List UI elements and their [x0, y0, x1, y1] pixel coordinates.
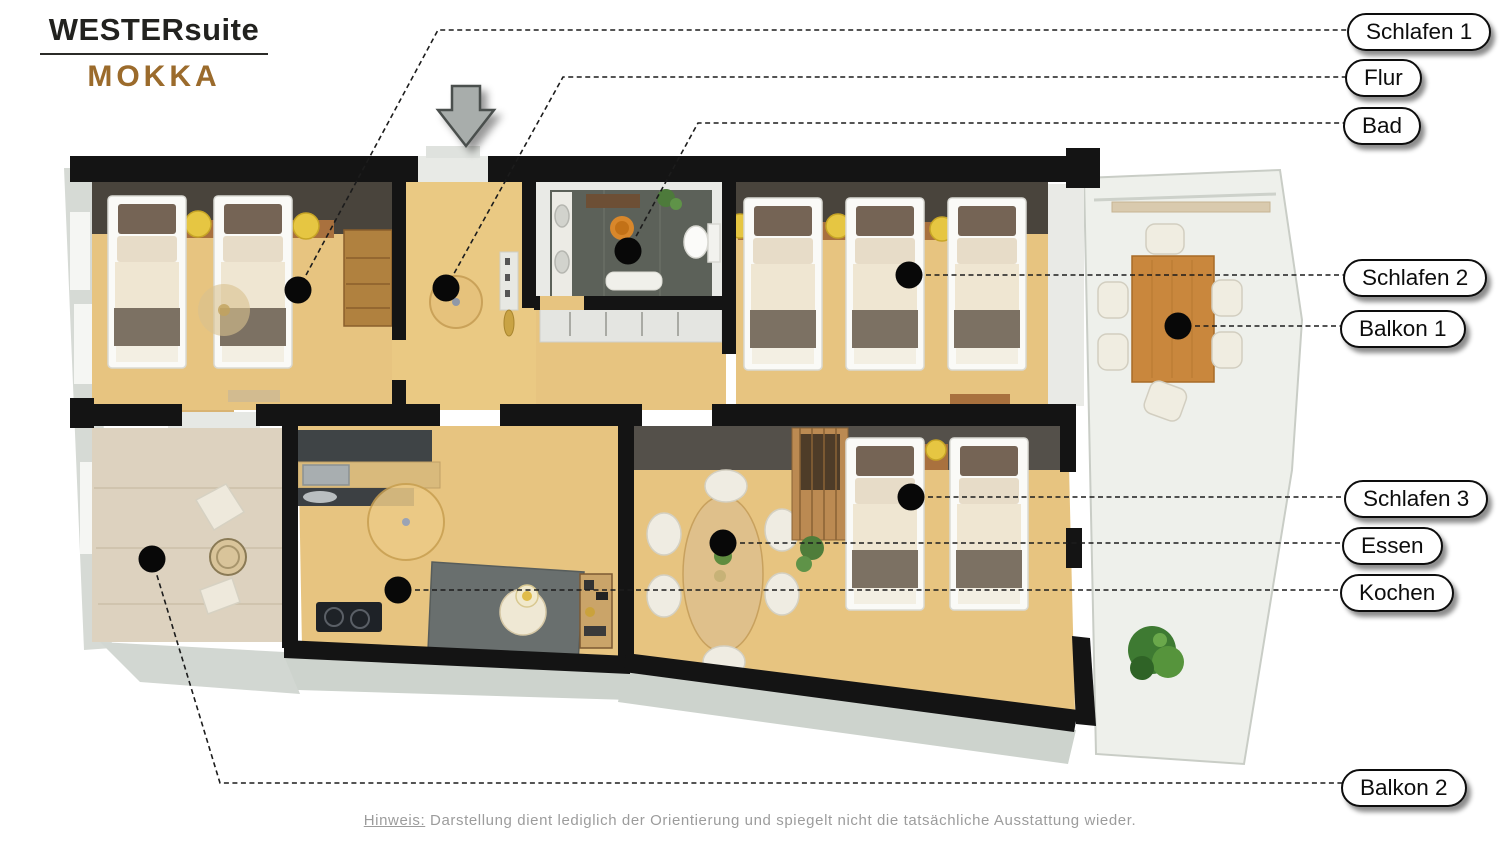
entrance-arrow	[438, 86, 494, 146]
dining-chair	[647, 513, 681, 555]
room-label-kochen: Kochen	[1340, 574, 1454, 612]
disclaimer-text: Darstellung dient lediglich der Orientie…	[430, 812, 1136, 829]
single-bed	[108, 196, 186, 368]
closet	[540, 306, 722, 342]
dot-schlafen-1	[285, 277, 312, 304]
lamp	[185, 211, 211, 237]
room-label-essen: Essen	[1342, 527, 1443, 565]
dot-schlafen-3	[898, 484, 925, 511]
floorplan-graphic	[0, 0, 1500, 844]
room-flur	[392, 180, 536, 410]
room-schlafen-1	[92, 180, 392, 410]
mirror	[504, 310, 514, 336]
room-schlafen-2	[728, 180, 1084, 410]
single-bed	[948, 198, 1026, 370]
lamp	[293, 213, 319, 239]
wicker-table	[210, 539, 246, 575]
room-kueche	[298, 426, 620, 662]
outdoor-chair	[1098, 282, 1128, 318]
room-label-schlafen-1: Schlafen 1	[1347, 13, 1491, 51]
brand-name: WESTERsuite	[40, 12, 268, 48]
balkon-1-area	[1084, 170, 1302, 764]
toilet	[684, 226, 708, 258]
dining-chair	[705, 470, 747, 502]
wardrobe	[344, 230, 392, 326]
disclaimer-prefix: Hinweis:	[364, 812, 425, 829]
room-label-balkon-1: Balkon 1	[1340, 310, 1466, 348]
dot-essen	[710, 530, 737, 557]
coffee-machine	[584, 626, 606, 636]
outdoor-chair	[1098, 334, 1128, 370]
towel-shelf	[586, 194, 640, 208]
disclaimer-note: Hinweis: Darstellung dient lediglich der…	[364, 812, 1137, 829]
brand-divider	[40, 53, 268, 55]
dot-kochen	[385, 577, 412, 604]
dot-flur	[433, 275, 460, 302]
suite-name: MOKKA	[40, 60, 268, 94]
bath-mat	[606, 272, 662, 290]
dining-chair	[647, 575, 681, 617]
single-bed	[950, 438, 1028, 610]
toilet-tank	[708, 224, 720, 262]
outdoor-chair	[1212, 280, 1242, 316]
kitchen-upper-cabinet	[298, 430, 432, 462]
entrance-door	[418, 156, 488, 182]
dot-balkon-2	[139, 546, 166, 573]
balkon-2-area	[92, 400, 292, 642]
sink	[555, 205, 569, 227]
dot-schlafen-2	[896, 262, 923, 289]
brand-logo: WESTERsuite MOKKA	[40, 12, 268, 94]
dot-balkon-1	[1165, 313, 1192, 340]
room-label-bad: Bad	[1343, 107, 1421, 145]
dining-chair	[765, 573, 799, 615]
window-left-1	[70, 212, 90, 290]
single-bed	[846, 438, 924, 610]
single-bed	[744, 198, 822, 370]
floorplan-page: WESTERsuite MOKKA Schlafen 1 Flur Bad Sc…	[0, 0, 1500, 844]
dot-bad	[615, 238, 642, 265]
single-bed	[214, 196, 292, 368]
window-left-2	[74, 304, 94, 384]
outdoor-chair	[1212, 332, 1242, 368]
outdoor-chair	[1146, 224, 1184, 254]
lamp	[926, 440, 946, 460]
hall-closet	[536, 302, 726, 410]
bench	[228, 390, 280, 402]
basin	[303, 491, 337, 503]
room-label-schlafen-2: Schlafen 2	[1343, 259, 1487, 297]
room-label-schlafen-3: Schlafen 3	[1344, 480, 1488, 518]
kitchen-sink	[303, 465, 349, 485]
room-label-balkon-2: Balkon 2	[1341, 769, 1467, 807]
sink	[555, 251, 569, 273]
balcony-door	[1048, 184, 1084, 406]
room-label-flur: Flur	[1345, 59, 1422, 97]
